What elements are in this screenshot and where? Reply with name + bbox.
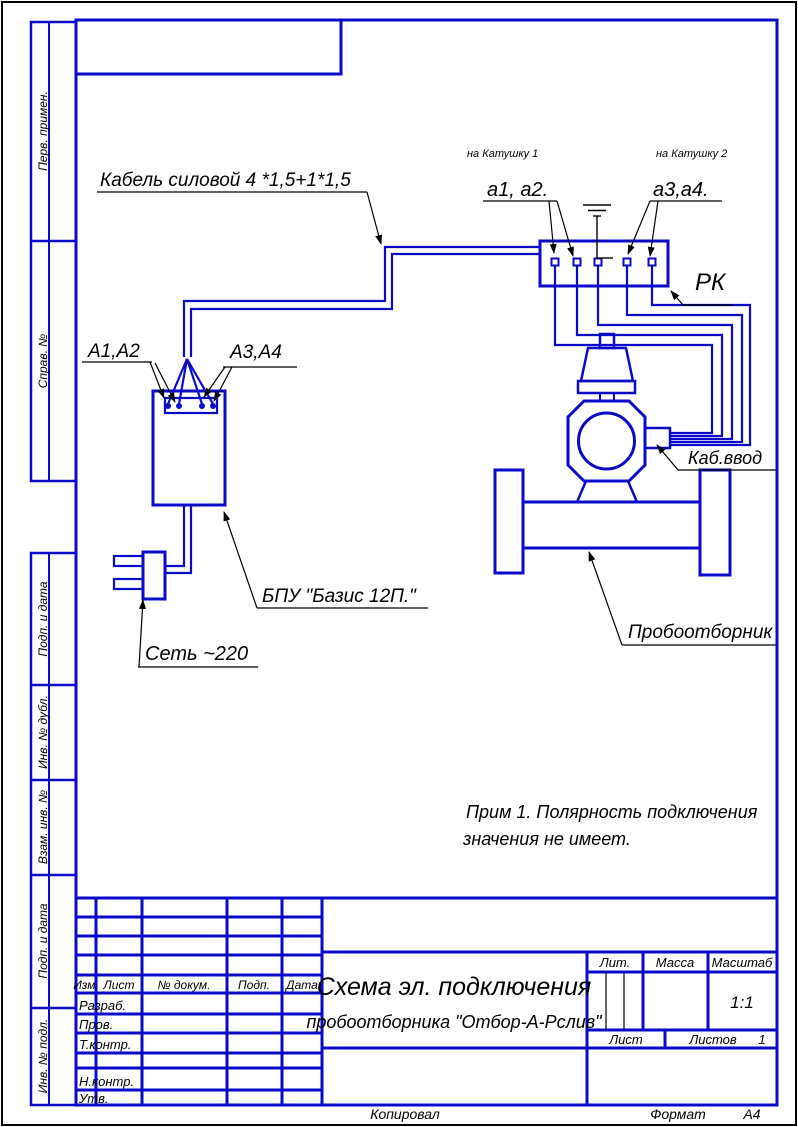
mains-plug <box>114 505 191 599</box>
label-a3a4-block: А3,А4 <box>229 342 282 363</box>
rk-terminal-1 <box>552 259 559 266</box>
label-cable-entry: Каб.ввод <box>688 448 762 468</box>
lit-subdividers <box>606 972 624 1030</box>
label-junction-box-rk: РК <box>695 269 727 296</box>
row-razrab: Разраб. <box>79 998 126 1013</box>
gost-drawing-svg: Перв. примен. Справ. № Подп. и дата Инв.… <box>0 0 798 1127</box>
rk-terminal-2 <box>574 259 581 266</box>
rk-terminal-5 <box>649 259 656 266</box>
sheets-value: 1 <box>758 1032 765 1047</box>
label-a1a2-terminals: а1, а2. <box>487 179 548 201</box>
actuator-flange <box>578 381 635 393</box>
label-sampler: Пробоотборник <box>628 622 773 643</box>
doc-title-line-1: Схема эл. подключения <box>317 973 592 1001</box>
cell-mass: Масса <box>656 955 694 970</box>
body-to-pipe-neck <box>577 481 637 502</box>
format-label: Формат <box>650 1106 706 1122</box>
col-no-dokum: № докум. <box>158 978 211 992</box>
label-a3a4-terminals: а3,а4. <box>653 179 709 201</box>
note-line-2: значения не имеет. <box>462 829 631 849</box>
margin-label-vzam-inv: Взам. инв. № <box>36 790 50 864</box>
label-a1a2-block: А1,А2 <box>87 341 140 362</box>
margin-label-inv-dubl: Инв. № дубл. <box>36 695 50 769</box>
cell-lit: Лит. <box>599 955 630 970</box>
ground-symbol <box>583 205 613 258</box>
cell-scale: Масштаб <box>712 955 773 970</box>
margin-label-sprav-no: Справ. № <box>36 334 50 389</box>
power-cable <box>184 247 540 357</box>
actuator-bell <box>581 348 633 381</box>
scale-value: 1:1 <box>730 993 754 1012</box>
label-to-coil-2: на Катушку 2 <box>656 148 727 160</box>
title-block-lines <box>76 898 777 1105</box>
doc-title-line-2: пробоотборника "Отбор-А-Рслив" <box>306 1012 603 1032</box>
row-tkontr: Т.контр. <box>79 1037 131 1052</box>
rk-terminal-3 <box>595 259 602 266</box>
margin-label-inv-podl: Инв. № подл. <box>36 1019 50 1093</box>
col-izm: Изм. <box>73 978 99 992</box>
flange-left <box>495 470 523 573</box>
flange-right <box>700 470 730 575</box>
label-to-coil-1: на Катушку 1 <box>467 148 538 160</box>
leader-lines <box>82 192 776 667</box>
kopiroval-label: Копировал <box>370 1106 440 1122</box>
junction-box-rk <box>540 241 668 286</box>
plug-prong-bottom <box>114 579 143 589</box>
label-power-cable: Кабель силовой 4 *1,5+1*1,5 <box>100 170 351 191</box>
rk-terminal-4 <box>624 259 631 266</box>
pipe-section <box>523 502 700 548</box>
margin-stamps-top: Перв. примен. Справ. № <box>31 22 76 481</box>
bpu-terminal-strip <box>165 398 217 413</box>
cell-sheets: Листов <box>688 1032 737 1047</box>
margin-label-perv-primen: Перв. примен. <box>36 91 50 171</box>
note-line-1: Прим 1. Полярность подключения <box>466 802 758 822</box>
format-value: А4 <box>742 1106 760 1122</box>
sheet-footer: Копировал Формат А4 <box>370 1106 761 1122</box>
margin-label-podp-data-1: Подп. и дата <box>36 581 50 656</box>
col-data: Дата <box>284 978 318 992</box>
row-prov: Пров. <box>79 1017 113 1032</box>
margin-label-podp-data-2: Подп. и дата <box>36 903 50 978</box>
label-mains: Сеть ~220 <box>145 643 248 665</box>
drawing-sheet: Перв. примен. Справ. № Подп. и дата Инв.… <box>0 0 798 1127</box>
row-nkontr: Н.контр. <box>79 1074 134 1089</box>
col-podp: Подп. <box>238 978 270 992</box>
margin-stamps-bottom: Подп. и дата Инв. № дубл. Взам. инв. № П… <box>31 553 76 1105</box>
row-utv: Утв. <box>78 1091 109 1106</box>
top-stamp-box <box>76 20 341 74</box>
sampler-body-circle <box>579 413 635 469</box>
cell-sheet: Лист <box>608 1032 643 1047</box>
plug-prong-top <box>114 556 143 566</box>
label-control-unit: БПУ "Базис 12П." <box>262 586 417 607</box>
col-list: Лист <box>103 978 135 992</box>
